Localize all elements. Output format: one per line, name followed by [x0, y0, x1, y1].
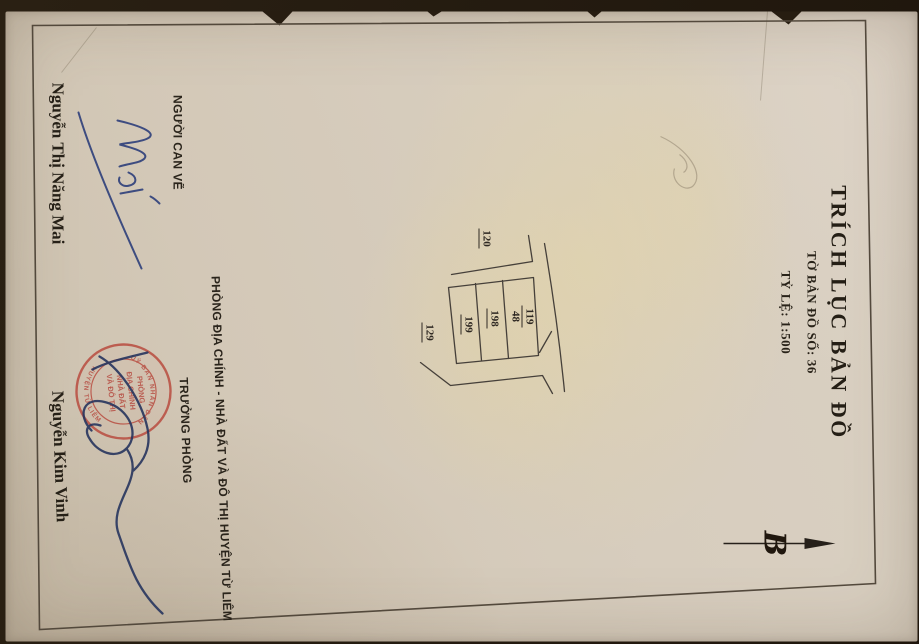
parcel-number: 119 — [521, 305, 535, 327]
parcel-divider — [502, 280, 508, 358]
parcel-label: 198 — [487, 296, 501, 340]
parcel-area: 48 — [509, 311, 521, 322]
boundary-spur — [539, 331, 551, 352]
drafter-name: Nguyễn Thị Năng Mai — [47, 57, 67, 269]
map-sheet-number: TỜ BẢN ĐỒ SỐ: 36 — [803, 132, 819, 492]
document-page: UỶ BAN NHÂN DÂN HUYỆN TỪ LIÊM PHÒNG ĐỊA … — [0, 0, 919, 644]
neighbor-parcel-label: 129 — [422, 310, 436, 354]
parcel-label-fraction: 119 48 — [509, 297, 535, 335]
road-line — [544, 243, 564, 391]
drafter-signature — [78, 112, 159, 268]
map-scale: TỶ LỆ: 1:500 — [777, 132, 793, 492]
parcel-label: 199 — [461, 302, 475, 346]
north-letter: B — [756, 520, 791, 566]
page-title: TRÍCH LỤC BẢN ĐỒ — [825, 132, 851, 492]
east-boundary-line — [420, 362, 552, 393]
neighbor-parcel-label: 120 — [479, 216, 493, 260]
pencil-ghost — [660, 136, 696, 188]
frame-border — [32, 20, 875, 629]
scanned-map-extract: UỶ BAN NHÂN DÂN HUYỆN TỪ LIÊM PHÒNG ĐỊA … — [0, 0, 919, 644]
drafter-role-label: NGƯỜI CAN VẼ — [170, 62, 184, 222]
parcel-divider — [475, 283, 481, 360]
